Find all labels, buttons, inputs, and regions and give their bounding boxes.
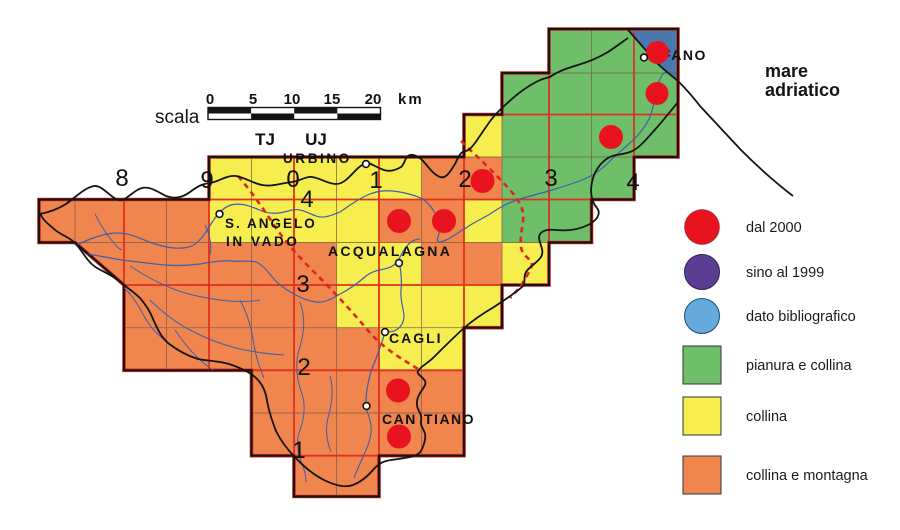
svg-text:1: 1: [369, 167, 382, 194]
svg-text:2: 2: [297, 354, 310, 381]
svg-text:dato bibliografico: dato bibliografico: [746, 309, 856, 325]
svg-text:scala: scala: [155, 107, 200, 128]
svg-text:collina e montagna: collina e montagna: [746, 468, 869, 484]
svg-text:pianura e collina: pianura e collina: [746, 358, 853, 374]
svg-text:20: 20: [365, 91, 382, 108]
svg-text:15: 15: [324, 91, 341, 108]
svg-text:0: 0: [206, 91, 214, 108]
svg-text:UJ: UJ: [305, 130, 327, 149]
svg-text:S. ANGELO: S. ANGELO: [225, 216, 317, 231]
svg-text:4: 4: [300, 186, 313, 213]
svg-text:IN VADO: IN VADO: [226, 234, 299, 249]
svg-text:1: 1: [292, 437, 305, 464]
svg-text:collina: collina: [746, 409, 788, 425]
svg-text:0: 0: [286, 166, 299, 193]
svg-text:ACQUALAGNA: ACQUALAGNA: [328, 243, 452, 259]
svg-text:9: 9: [200, 167, 213, 194]
svg-text:CAN: CAN: [382, 411, 417, 427]
svg-text:10: 10: [284, 91, 301, 108]
svg-text:TIANO: TIANO: [424, 411, 475, 427]
svg-text:mare: mare: [765, 61, 808, 81]
svg-text:3: 3: [544, 165, 557, 192]
svg-text:FANO: FANO: [662, 47, 707, 63]
svg-text:4: 4: [626, 169, 639, 196]
svg-text:TJ: TJ: [255, 130, 275, 149]
svg-text:5: 5: [249, 91, 257, 108]
svg-text:sino al 1999: sino al 1999: [746, 265, 824, 281]
svg-text:2: 2: [458, 166, 471, 193]
svg-text:8: 8: [115, 165, 128, 192]
svg-text:km: km: [398, 91, 424, 108]
svg-text:adriatico: adriatico: [765, 80, 840, 100]
svg-text:3: 3: [296, 271, 309, 298]
svg-text:URBINO: URBINO: [283, 151, 352, 166]
svg-text:dal 2000: dal 2000: [746, 220, 802, 236]
svg-text:CAGLI: CAGLI: [389, 330, 443, 346]
